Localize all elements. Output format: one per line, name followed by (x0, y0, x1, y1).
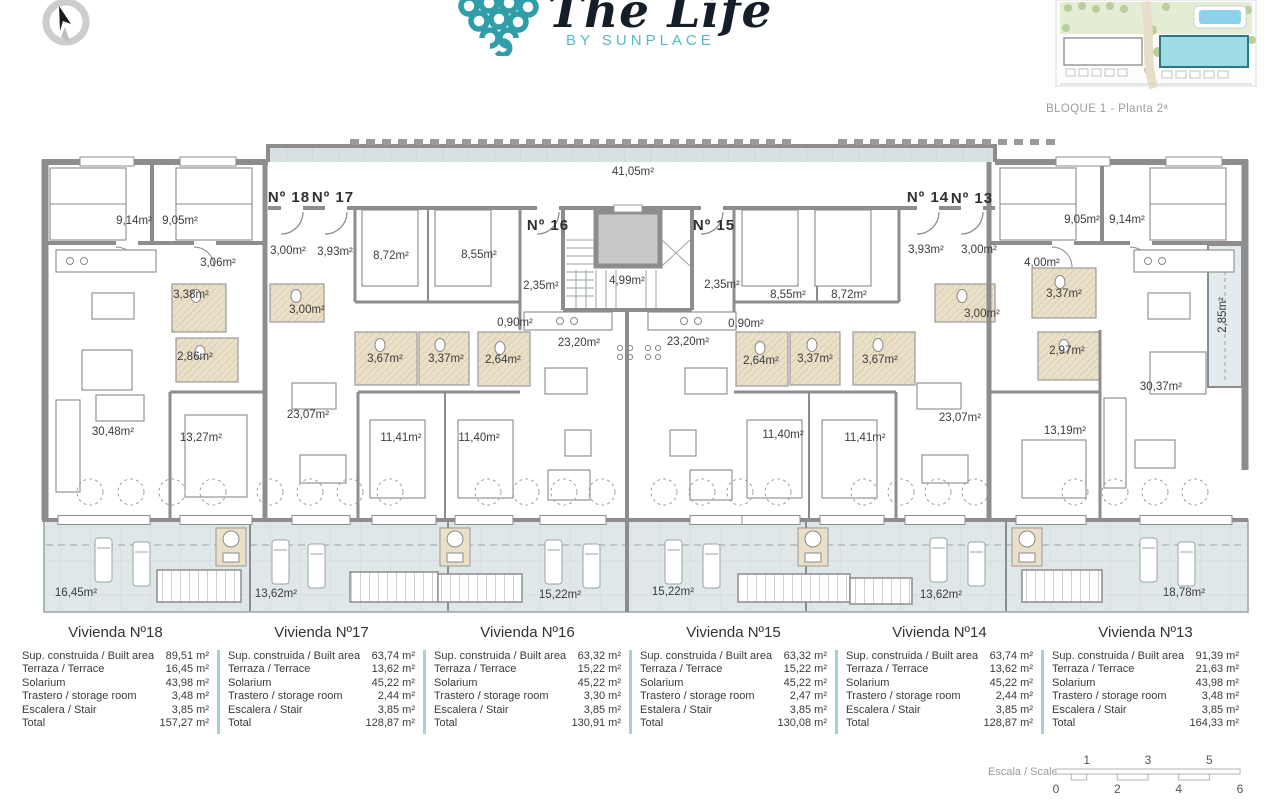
furniture-item (1134, 250, 1234, 272)
row-label: Solarium (22, 677, 65, 690)
row-label: Escalera / Stair (1052, 704, 1127, 717)
furniture-item (300, 455, 346, 483)
table-row: Sup. construida / Built area89,51 m² (22, 650, 209, 663)
row-value: 3,48 m² (1202, 690, 1239, 703)
furniture-item (685, 368, 727, 394)
room-area-label: 2,64m² (485, 354, 521, 366)
table-row: Total130,08 m² (640, 717, 827, 730)
bath-fixture (435, 339, 445, 352)
room-area-label: 4,00m² (1024, 257, 1060, 269)
furniture-item (1135, 440, 1175, 468)
sun-lounger (968, 542, 985, 586)
row-value: 45,22 m² (578, 677, 621, 690)
row-value: 164,33 m² (1189, 717, 1239, 730)
room-area-label: 30,48m² (92, 426, 134, 438)
row-value: 63,32 m² (578, 650, 621, 663)
room-area-label: 8,55m² (461, 249, 497, 261)
row-label: Solarium (846, 677, 889, 690)
table-separator (629, 650, 632, 734)
table-row: Sup. construida / Built area63,32 m² (640, 650, 827, 663)
table-separator (217, 650, 220, 734)
sun-lounger (133, 542, 150, 586)
row-label: Trastero / storage room (434, 690, 549, 703)
room-area-label: 3,37m² (1046, 288, 1082, 300)
apartment-number-label: Nº 13 (951, 190, 993, 207)
apartment-number-label: Nº 17 (312, 189, 354, 206)
room-area-label: 3,93m² (317, 246, 353, 258)
table-row: Trastero / storage room2,44 m² (846, 690, 1033, 703)
row-value: 15,22 m² (784, 663, 827, 676)
row-label: Terraza / Terrace (846, 663, 928, 676)
furniture-item (92, 293, 134, 319)
table-row: Sup. construida / Built area63,32 m² (434, 650, 621, 663)
window (742, 516, 800, 525)
bath-fixture (375, 339, 385, 352)
table-row: Trastero / storage room2,44 m² (228, 690, 415, 703)
row-label: Terraza / Terrace (640, 663, 722, 676)
table-row: Escalera / Stair3,85 m² (1052, 704, 1239, 717)
furniture-item (1104, 398, 1126, 488)
table-row: Solarium45,22 m² (846, 677, 1033, 690)
bath-fixture (807, 339, 817, 352)
row-value: 3,30 m² (584, 690, 621, 703)
row-value: 2,44 m² (996, 690, 1033, 703)
room-area-label: 3,93m² (908, 244, 944, 256)
room-area-label: 2,97m² (1049, 345, 1085, 357)
row-label: Sup. construida / Built area (640, 650, 772, 663)
row-value: 13,62 m² (990, 663, 1033, 676)
row-label: Sup. construida / Built area (228, 650, 360, 663)
row-value: 13,62 m² (372, 663, 415, 676)
table-row: Sup. construida / Built area63,74 m² (846, 650, 1033, 663)
row-value: 89,51 m² (166, 650, 209, 663)
room-area-label: 3,00m² (270, 245, 306, 257)
window (1056, 157, 1110, 166)
table-row: Solarium45,22 m² (434, 677, 621, 690)
window (372, 516, 436, 525)
table-row: Terraza / Terrace13,62 m² (228, 663, 415, 676)
sun-lounger (545, 540, 562, 584)
row-label: Trastero / storage room (1052, 690, 1167, 703)
bath-fixture (1055, 276, 1065, 289)
furniture-item (56, 250, 156, 272)
row-value: 157,27 m² (159, 717, 209, 730)
table-row: Solarium43,98 m² (1052, 677, 1239, 690)
row-value: 45,22 m² (784, 677, 827, 690)
sun-lounger (703, 544, 720, 588)
table-row: Estalera / Stair3,85 m² (640, 704, 827, 717)
furniture-item (292, 383, 336, 409)
scale-number: 5 (1206, 753, 1213, 767)
window (540, 516, 606, 525)
bath-fixture (755, 342, 765, 355)
room-area-label: 4,99m² (609, 275, 645, 287)
row-value: 43,98 m² (166, 677, 209, 690)
row-label: Total (846, 717, 869, 730)
row-value: 3,85 m² (172, 704, 209, 717)
furniture-item (815, 210, 871, 286)
vivienda-title: Vivienda Nº18 (22, 624, 209, 641)
furniture-item (1148, 293, 1190, 319)
table-row: Total128,87 m² (228, 717, 415, 730)
row-label: Total (434, 717, 457, 730)
row-label: Terraza / Terrace (434, 663, 516, 676)
window (180, 157, 236, 166)
row-label: Solarium (228, 677, 271, 690)
row-value: 21,63 m² (1196, 663, 1239, 676)
row-label: Trastero / storage room (640, 690, 755, 703)
sun-lounger (1140, 538, 1157, 582)
row-label: Terraza / Terrace (228, 663, 310, 676)
row-label: Escalera / Stair (228, 704, 303, 717)
vivienda-title: Vivienda Nº16 (434, 624, 621, 641)
row-label: Trastero / storage room (846, 690, 961, 703)
table-row: Total164,33 m² (1052, 717, 1239, 730)
furniture-item (82, 350, 132, 390)
door-gap (1130, 239, 1152, 247)
room-area-label: 3,37m² (428, 353, 464, 365)
room-area-label: 3,67m² (862, 354, 898, 366)
bath-fixture (495, 342, 505, 355)
apartment-number-label: Nº 16 (527, 217, 569, 234)
bath-fixture (291, 290, 301, 303)
room-area-label: 3,38m² (173, 289, 209, 301)
row-label: Escalera / Stair (846, 704, 921, 717)
room-area-label: 13,27m² (180, 432, 222, 444)
row-value: 3,85 m² (1202, 704, 1239, 717)
table-row: Escalera / Stair3,85 m² (22, 704, 209, 717)
furniture-item (545, 368, 587, 394)
table-separator (423, 650, 426, 734)
room-area-label: 2,64m² (743, 355, 779, 367)
apartment-number-label: Nº 14 (907, 189, 949, 206)
table-separator (835, 650, 838, 734)
vivienda-tables: Vivienda Nº18Sup. construida / Built are… (22, 624, 1260, 734)
room-area-label: 11,41m² (380, 432, 422, 444)
row-value: 3,85 m² (996, 704, 1033, 717)
row-value: 128,87 m² (365, 717, 415, 730)
row-label: Estalera / Stair (640, 704, 712, 717)
table-row: Trastero / storage room2,47 m² (640, 690, 827, 703)
room-area-label: 2,86m² (177, 351, 213, 363)
row-label: Terraza / Terrace (1052, 663, 1134, 676)
sun-lounger (95, 538, 112, 582)
sun-lounger (930, 538, 947, 582)
vivienda-title: Vivienda Nº13 (1052, 624, 1239, 641)
bath-fixture (957, 290, 967, 303)
window (820, 516, 884, 525)
sun-lounger (308, 544, 325, 588)
sun-lounger (665, 540, 682, 584)
row-label: Sup. construida / Built area (22, 650, 154, 663)
table-row: Trastero / storage room3,48 m² (22, 690, 209, 703)
room-area-label: 9,05m² (162, 215, 198, 227)
room-area-label: 2,85m² (1217, 297, 1229, 333)
sun-lounger (583, 544, 600, 588)
table-row: Solarium43,98 m² (22, 677, 209, 690)
row-value: 63,74 m² (372, 650, 415, 663)
window (292, 516, 350, 525)
table-row: Escalera / Stair3,85 m² (228, 704, 415, 717)
row-label: Solarium (1052, 677, 1095, 690)
bath-fixture (873, 339, 883, 352)
furniture-item (565, 430, 591, 456)
row-label: Total (228, 717, 251, 730)
window (455, 516, 513, 525)
scale-number: 3 (1145, 753, 1152, 767)
scale-number: 6 (1237, 782, 1244, 796)
vivienda-title: Vivienda Nº14 (846, 624, 1033, 641)
row-value: 2,47 m² (790, 690, 827, 703)
table-row: Terraza / Terrace16,45 m² (22, 663, 209, 676)
vivienda-table-14: Vivienda Nº14Sup. construida / Built are… (846, 624, 1033, 730)
scale-number: 4 (1175, 782, 1182, 796)
row-value: 3,85 m² (584, 704, 621, 717)
vivienda-table-17: Vivienda Nº17Sup. construida / Built are… (228, 624, 415, 730)
row-label: Terraza / Terrace (22, 663, 104, 676)
door-gap (701, 203, 723, 212)
row-label: Sup. construida / Built area (434, 650, 566, 663)
vivienda-table-15: Vivienda Nº15Sup. construida / Built are… (640, 624, 827, 730)
vivienda-table-13: Vivienda Nº13Sup. construida / Built are… (1052, 624, 1239, 730)
scale-number: 0 (1053, 782, 1060, 796)
room-area-label: 3,00m² (961, 244, 997, 256)
room-area-label: 8,55m² (770, 289, 806, 301)
room-area-label: 8,72m² (373, 250, 409, 262)
window (80, 157, 134, 166)
room-area-label: 13,19m² (1044, 425, 1086, 437)
room-area-label: 2,35m² (704, 279, 740, 291)
apartment-number-label: Nº 15 (693, 217, 735, 234)
table-row: Trastero / storage room3,30 m² (434, 690, 621, 703)
row-value: 91,39 m² (1196, 650, 1239, 663)
room-area-label: 9,14m² (1109, 214, 1145, 226)
table-row: Terraza / Terrace13,62 m² (846, 663, 1033, 676)
room-area-label: 23,20m² (558, 337, 600, 349)
sun-lounger (272, 540, 289, 584)
room-area-label: 9,05m² (1064, 214, 1100, 226)
table-row: Solarium45,22 m² (640, 677, 827, 690)
table-row: Sup. construida / Built area63,74 m² (228, 650, 415, 663)
room-area-label: 11,40m² (458, 432, 500, 444)
row-value: 16,45 m² (166, 663, 209, 676)
row-value: 130,91 m² (571, 717, 621, 730)
window (58, 516, 150, 525)
furniture-item (435, 210, 491, 286)
table-row: Terraza / Terrace21,63 m² (1052, 663, 1239, 676)
table-row: Escalera / Stair3,85 m² (846, 704, 1033, 717)
room-area-label: 23,20m² (667, 336, 709, 348)
row-value: 63,74 m² (990, 650, 1033, 663)
furniture-item (56, 400, 80, 492)
furniture-item (185, 415, 247, 497)
vivienda-table-18: Vivienda Nº18Sup. construida / Built are… (22, 624, 209, 730)
furniture-item (670, 430, 696, 456)
room-area-label: 0,90m² (728, 318, 764, 330)
row-label: Escalera / Stair (22, 704, 97, 717)
room-area-label: 3,67m² (367, 353, 403, 365)
row-label: Escalera / Stair (434, 704, 509, 717)
table-row: Escalera / Stair3,85 m² (434, 704, 621, 717)
room-area-label: 23,07m² (287, 409, 329, 421)
row-value: 2,44 m² (378, 690, 415, 703)
window (1166, 157, 1222, 166)
furniture-item (648, 312, 736, 330)
table-row: Trastero / storage room3,48 m² (1052, 690, 1239, 703)
window (1140, 516, 1232, 525)
furniture-item (524, 312, 612, 330)
table-row: Total157,27 m² (22, 717, 209, 730)
table-row: Terraza / Terrace15,22 m² (434, 663, 621, 676)
room-area-label: 11,40m² (762, 429, 804, 441)
room-area-label: 13,62m² (255, 588, 297, 600)
furniture-item (690, 470, 732, 500)
room-area-label: 18,78m² (1163, 587, 1205, 599)
row-value: 128,87 m² (983, 717, 1033, 730)
row-value: 45,22 m² (372, 677, 415, 690)
room-area-label: 13,62m² (920, 589, 962, 601)
table-row: Total128,87 m² (846, 717, 1033, 730)
room-area-label: 8,72m² (831, 289, 867, 301)
row-label: Total (1052, 717, 1075, 730)
door-gap (537, 203, 559, 212)
room-area-label: 3,00m² (964, 308, 1000, 320)
window (1016, 516, 1086, 525)
furniture-item (96, 395, 144, 421)
row-value: 3,48 m² (172, 690, 209, 703)
table-separator (1041, 650, 1044, 734)
row-value: 15,22 m² (578, 663, 621, 676)
row-value: 43,98 m² (1196, 677, 1239, 690)
room-area-label: 30,37m² (1140, 381, 1182, 393)
vivienda-table-16: Vivienda Nº16Sup. construida / Built are… (434, 624, 621, 730)
plan-sheet: The Life BY SUNPLACE BLOQUE 1 - Planta 2… (0, 0, 1280, 800)
row-label: Total (22, 717, 45, 730)
furniture-item (922, 455, 968, 483)
sun-lounger (1178, 542, 1195, 586)
row-value: 130,08 m² (777, 717, 827, 730)
room-area-label: 15,22m² (539, 589, 581, 601)
row-label: Total (640, 717, 663, 730)
row-value: 63,32 m² (784, 650, 827, 663)
row-label: Sup. construida / Built area (1052, 650, 1184, 663)
vivienda-title: Vivienda Nº15 (640, 624, 827, 641)
table-row: Sup. construida / Built area91,39 m² (1052, 650, 1239, 663)
room-area-label: 2,35m² (523, 280, 559, 292)
furniture-item (548, 470, 590, 500)
room-area-label: 11,41m² (844, 432, 886, 444)
furniture-item (362, 210, 418, 286)
window (180, 516, 252, 525)
row-label: Solarium (640, 677, 683, 690)
row-label: Sup. construida / Built area (846, 650, 978, 663)
row-value: 3,85 m² (378, 704, 415, 717)
row-value: 3,85 m² (790, 704, 827, 717)
room-area-label: 16,45m² (55, 587, 97, 599)
apartment-number-label: Nº 18 (268, 189, 310, 206)
scale-bar: 1350246 (1048, 748, 1258, 800)
row-label: Trastero / storage room (228, 690, 343, 703)
window (905, 516, 965, 525)
room-area-label: 15,22m² (652, 586, 694, 598)
table-row: Terraza / Terrace15,22 m² (640, 663, 827, 676)
room-area-label: 41,05m² (612, 166, 654, 178)
room-area-label: 3,37m² (797, 353, 833, 365)
furniture-item (917, 383, 961, 409)
room-area-label: 3,06m² (200, 257, 236, 269)
furniture-item (742, 210, 798, 286)
scale-number: 2 (1114, 782, 1121, 796)
row-value: 45,22 m² (990, 677, 1033, 690)
row-label: Solarium (434, 677, 477, 690)
scale-number: 1 (1083, 753, 1090, 767)
row-label: Trastero / storage room (22, 690, 137, 703)
table-row: Solarium45,22 m² (228, 677, 415, 690)
room-area-label: 3,00m² (289, 304, 325, 316)
furniture-item (1022, 440, 1086, 498)
room-area-label: 9,14m² (116, 215, 152, 227)
table-row: Total130,91 m² (434, 717, 621, 730)
room-area-label: 0,90m² (497, 317, 533, 329)
vivienda-title: Vivienda Nº17 (228, 624, 415, 641)
room-area-label: 23,07m² (939, 412, 981, 424)
